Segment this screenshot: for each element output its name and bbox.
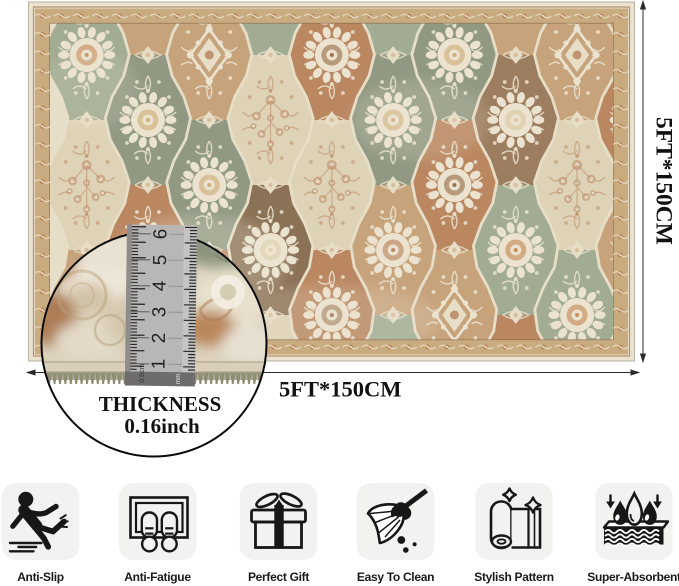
svg-text:mm: mm [175,373,182,384]
svg-text:Perfect Gift: Perfect Gift [248,570,309,584]
svg-text:THICKNESS: THICKNESS [99,392,222,416]
svg-text:5FT*150CM: 5FT*150CM [651,117,677,245]
svg-text:Anti-Slip: Anti-Slip [17,570,64,584]
svg-text:Stylish Pattern: Stylish Pattern [474,570,554,584]
svg-text:Anti-Fatigue: Anti-Fatigue [124,570,191,584]
svg-text:5: 5 [150,255,171,266]
svg-text:6: 6 [150,229,171,240]
svg-text:2: 2 [149,333,170,344]
svg-text:Super-Absorbent: Super-Absorbent [587,570,679,584]
svg-text:5FT*150CM: 5FT*150CM [279,377,402,402]
svg-text:0.5cm: 0.5cm [139,363,146,382]
svg-text:0.16inch: 0.16inch [124,414,200,438]
svg-text:1: 1 [149,359,170,370]
svg-text:3: 3 [149,307,170,318]
svg-text:Easy To Clean: Easy To Clean [357,570,434,584]
svg-text:4: 4 [150,280,171,291]
